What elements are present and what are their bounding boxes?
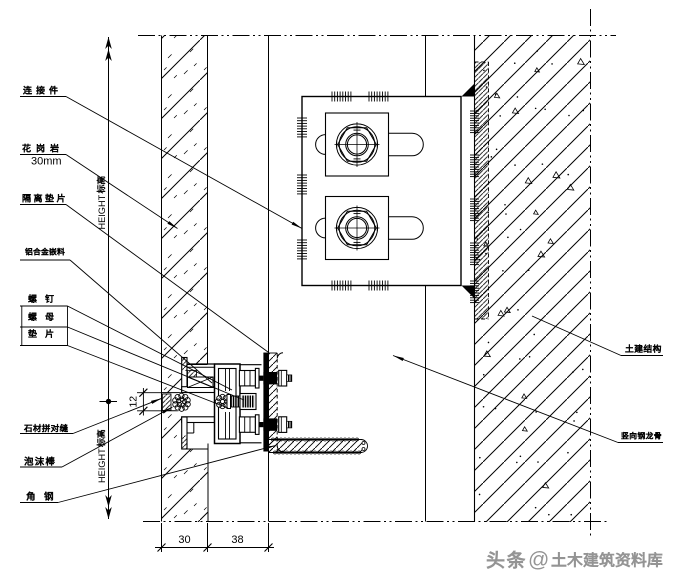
svg-text:30mm: 30mm [31,156,62,168]
svg-text:HEIGHT: HEIGHT [97,448,107,483]
svg-text:@: @ [528,549,549,572]
svg-text:12: 12 [128,396,140,408]
svg-text:30: 30 [178,534,190,546]
svg-text:38: 38 [231,534,243,546]
svg-text:HEIGHT: HEIGHT [97,194,107,229]
